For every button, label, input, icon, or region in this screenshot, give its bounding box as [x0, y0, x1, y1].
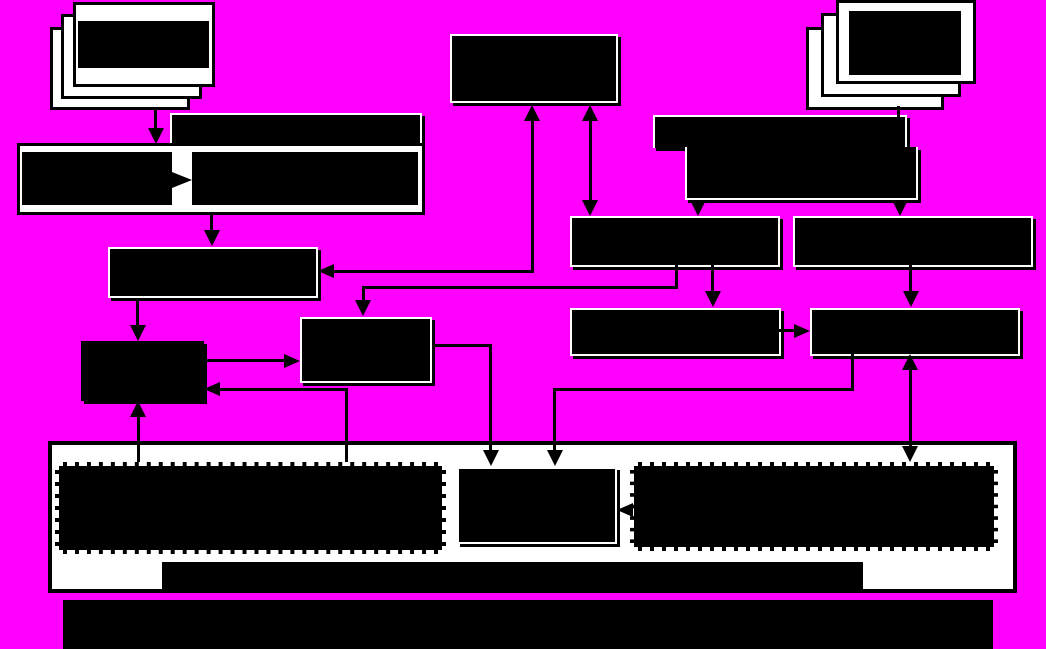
edge-g1-e — [675, 265, 678, 288]
arrowhead — [903, 291, 919, 307]
bar-a1 — [170, 113, 422, 146]
arrowhead — [483, 450, 499, 466]
arrowhead — [582, 200, 598, 216]
sheet-front — [73, 2, 215, 87]
box-d — [108, 247, 318, 298]
box-a-left-cell — [22, 152, 172, 205]
box-e — [300, 317, 432, 383]
edge-dashedleft-f2 — [220, 388, 348, 391]
arrowhead — [355, 300, 371, 316]
box-c — [450, 34, 618, 103]
box-k — [457, 467, 617, 544]
box-f — [81, 341, 204, 401]
sheet-front — [836, 0, 976, 84]
redacted-band — [78, 21, 209, 68]
box-a — [17, 143, 425, 215]
edge-docright-b1 — [897, 106, 900, 118]
edge-c-g1 — [589, 119, 592, 203]
edge-e-k — [432, 344, 492, 347]
box-h1 — [570, 308, 781, 356]
bar-b1 — [653, 115, 907, 148]
arrowhead — [130, 401, 146, 417]
edge-g1-e — [362, 286, 678, 289]
arrowhead — [204, 382, 220, 396]
box-g2 — [793, 216, 1033, 267]
bar-b2 — [685, 147, 918, 200]
redacted-band — [849, 11, 961, 75]
flowchart-canvas — [0, 0, 1046, 649]
edge-dashedleft-f2 — [345, 388, 348, 462]
arrowhead — [204, 230, 220, 246]
edge-h2-dashedright — [909, 366, 912, 450]
box-g1 — [570, 216, 780, 267]
dashed-box-right — [630, 462, 998, 551]
arrowhead — [902, 354, 918, 370]
edge-h1-k — [553, 388, 854, 391]
edge-d-f — [136, 298, 139, 327]
arrowhead — [318, 264, 334, 278]
arrowhead — [547, 450, 563, 466]
bar-j1 — [162, 562, 863, 593]
edge-a-d — [210, 212, 213, 232]
arrowhead — [705, 291, 721, 307]
arrowhead — [284, 354, 300, 368]
edge-g2-h2 — [909, 265, 912, 293]
dashed-box-left — [55, 462, 446, 554]
internal-arrow-right-icon — [172, 172, 192, 188]
arrowhead — [617, 503, 633, 517]
edge-dashedleft-f — [137, 415, 140, 462]
edge-h1-k — [851, 352, 854, 391]
arrowhead — [130, 325, 146, 341]
box-a-right-cell — [192, 152, 418, 205]
bar-j2 — [63, 600, 993, 649]
edge-docleft-a — [154, 108, 157, 130]
edge-h1-h2 — [779, 329, 795, 332]
arrowhead — [690, 200, 706, 216]
edge-c-d — [334, 270, 534, 273]
arrowhead — [794, 324, 810, 338]
arrowhead — [902, 446, 918, 462]
arrowhead — [892, 200, 908, 216]
box-h2 — [810, 308, 1020, 356]
edge-h1-k — [553, 388, 556, 452]
edge-c-d — [531, 119, 534, 272]
arrowhead — [148, 128, 164, 144]
edge-f-e — [204, 359, 286, 362]
edge-g1-h1 — [711, 265, 714, 293]
edge-e-k — [489, 344, 492, 452]
